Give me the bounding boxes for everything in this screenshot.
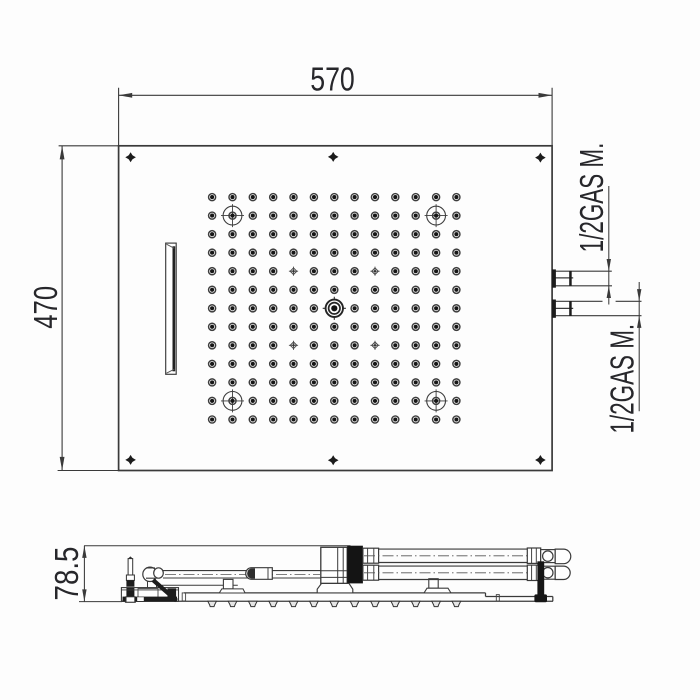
svg-text:78.5: 78.5	[49, 547, 86, 601]
svg-text:470: 470	[28, 286, 65, 329]
svg-text:1/2GAS M.: 1/2GAS M.	[573, 143, 610, 253]
svg-text:570: 570	[310, 62, 355, 98]
svg-text:1/2GAS M.: 1/2GAS M.	[603, 324, 640, 434]
